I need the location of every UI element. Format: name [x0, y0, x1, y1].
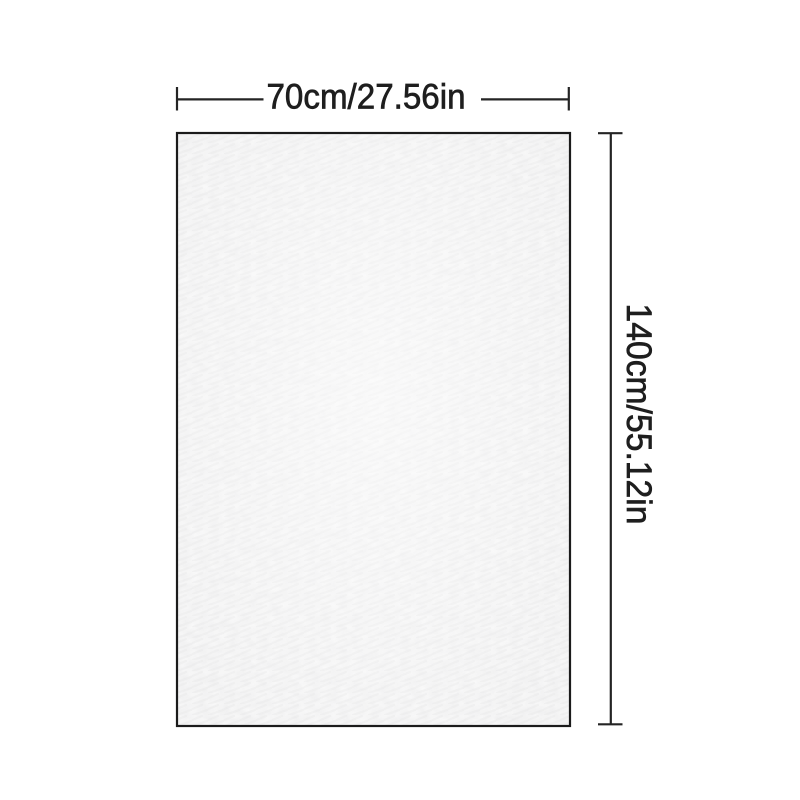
svg-text:70cm/27.56in: 70cm/27.56in: [267, 78, 466, 117]
svg-text:140cm/55.12in: 140cm/55.12in: [619, 304, 658, 525]
